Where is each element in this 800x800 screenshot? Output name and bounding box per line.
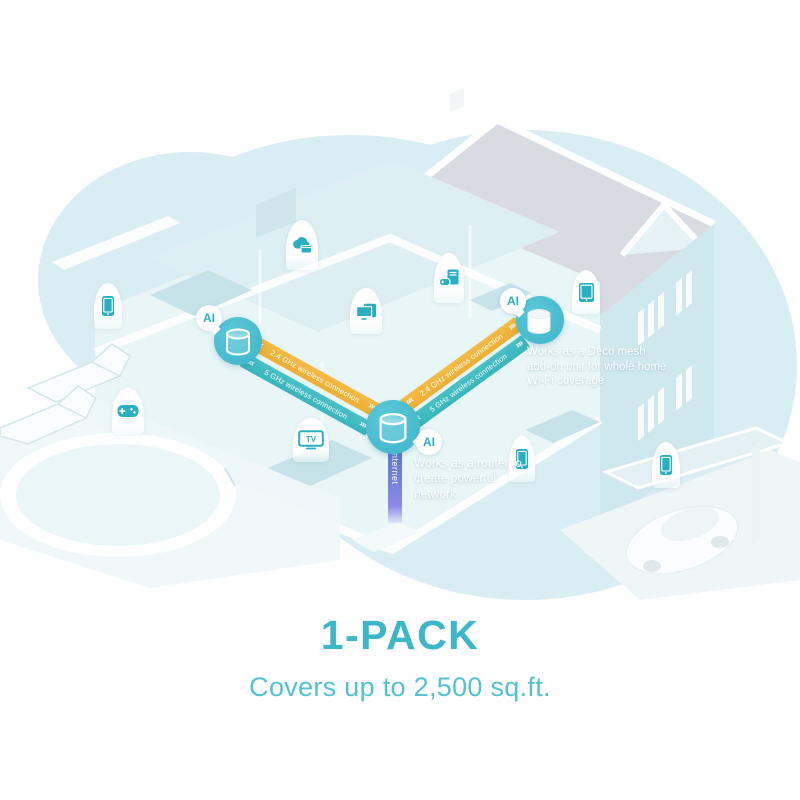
- ai-label: AI: [423, 435, 435, 449]
- footer: 1-PACK Covers up to 2,500 sq.ft.: [0, 612, 800, 703]
- deco-cylinder-icon: [366, 400, 420, 454]
- internet-label: Internet: [390, 450, 400, 485]
- extender-caption: Works as a Deco mesh add-on unit for who…: [527, 345, 667, 389]
- internet-link: Internet: [388, 445, 402, 523]
- ai-label: AI: [507, 294, 519, 308]
- ai-badge-left-unit: AI: [196, 305, 222, 331]
- router-caption: Works as a router to create powerful net…: [414, 456, 534, 502]
- desktop-gaming-icon: [439, 269, 459, 287]
- smartphone-icon: [101, 295, 115, 317]
- tv-icon: TV: [298, 430, 324, 450]
- gamepad-icon: [117, 404, 139, 418]
- ai-label: AI: [203, 311, 215, 325]
- ai-badge-router: AI: [416, 429, 442, 455]
- screen-mirroring-icon: [356, 303, 377, 320]
- tablet-icon: [578, 282, 595, 303]
- smartphone-icon: [659, 454, 673, 476]
- tv-label: TV: [306, 435, 317, 444]
- deco-cylinder-icon: [214, 317, 262, 365]
- deco-router-main: [366, 400, 420, 454]
- deco-coverage-illustration: ‹‹‹ 2.4 GHz wireless connection ››› ‹‹‹ …: [0, 0, 800, 800]
- cloud-storage-icon: [291, 236, 313, 254]
- coverage-subtitle: Covers up to 2,500 sq.ft.: [0, 672, 800, 703]
- pack-title: 1-PACK: [0, 612, 800, 659]
- deco-unit-left: [214, 317, 262, 365]
- ai-badge-extender: AI: [500, 288, 526, 314]
